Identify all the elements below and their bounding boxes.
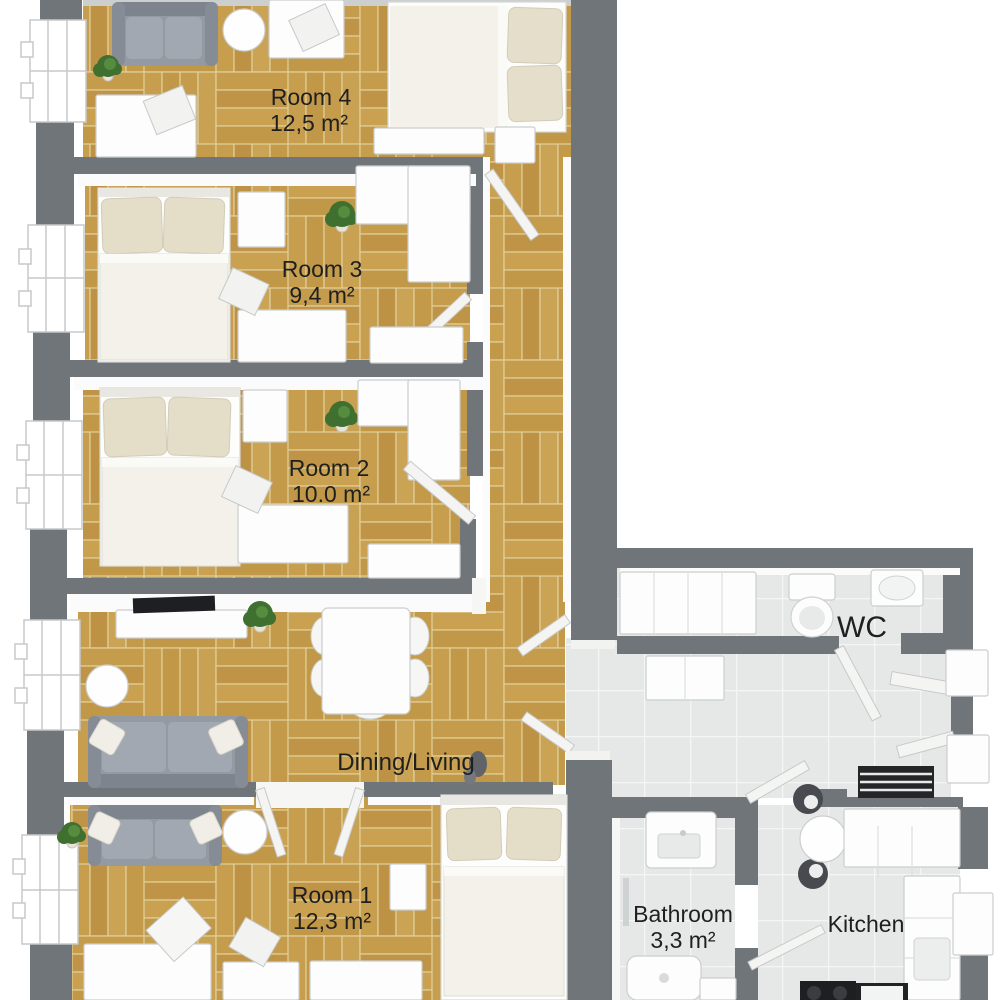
svg-text:Room 2: Room 2 bbox=[289, 455, 370, 481]
svg-text:10.0 m²: 10.0 m² bbox=[292, 481, 370, 507]
svg-text:Room 3: Room 3 bbox=[282, 256, 363, 282]
svg-text:3,3 m²: 3,3 m² bbox=[650, 927, 716, 953]
svg-text:12,3 m²: 12,3 m² bbox=[293, 908, 371, 934]
svg-text:9,4 m²: 9,4 m² bbox=[289, 282, 355, 308]
svg-text:Room 4: Room 4 bbox=[271, 84, 352, 110]
svg-text:Room 1: Room 1 bbox=[292, 882, 373, 908]
svg-text:Kitchen: Kitchen bbox=[828, 911, 905, 937]
svg-text:Bathroom: Bathroom bbox=[633, 901, 733, 927]
svg-text:WC: WC bbox=[837, 611, 887, 644]
svg-text:Dining/Living: Dining/Living bbox=[337, 749, 474, 776]
svg-text:12,5 m²: 12,5 m² bbox=[270, 110, 348, 136]
